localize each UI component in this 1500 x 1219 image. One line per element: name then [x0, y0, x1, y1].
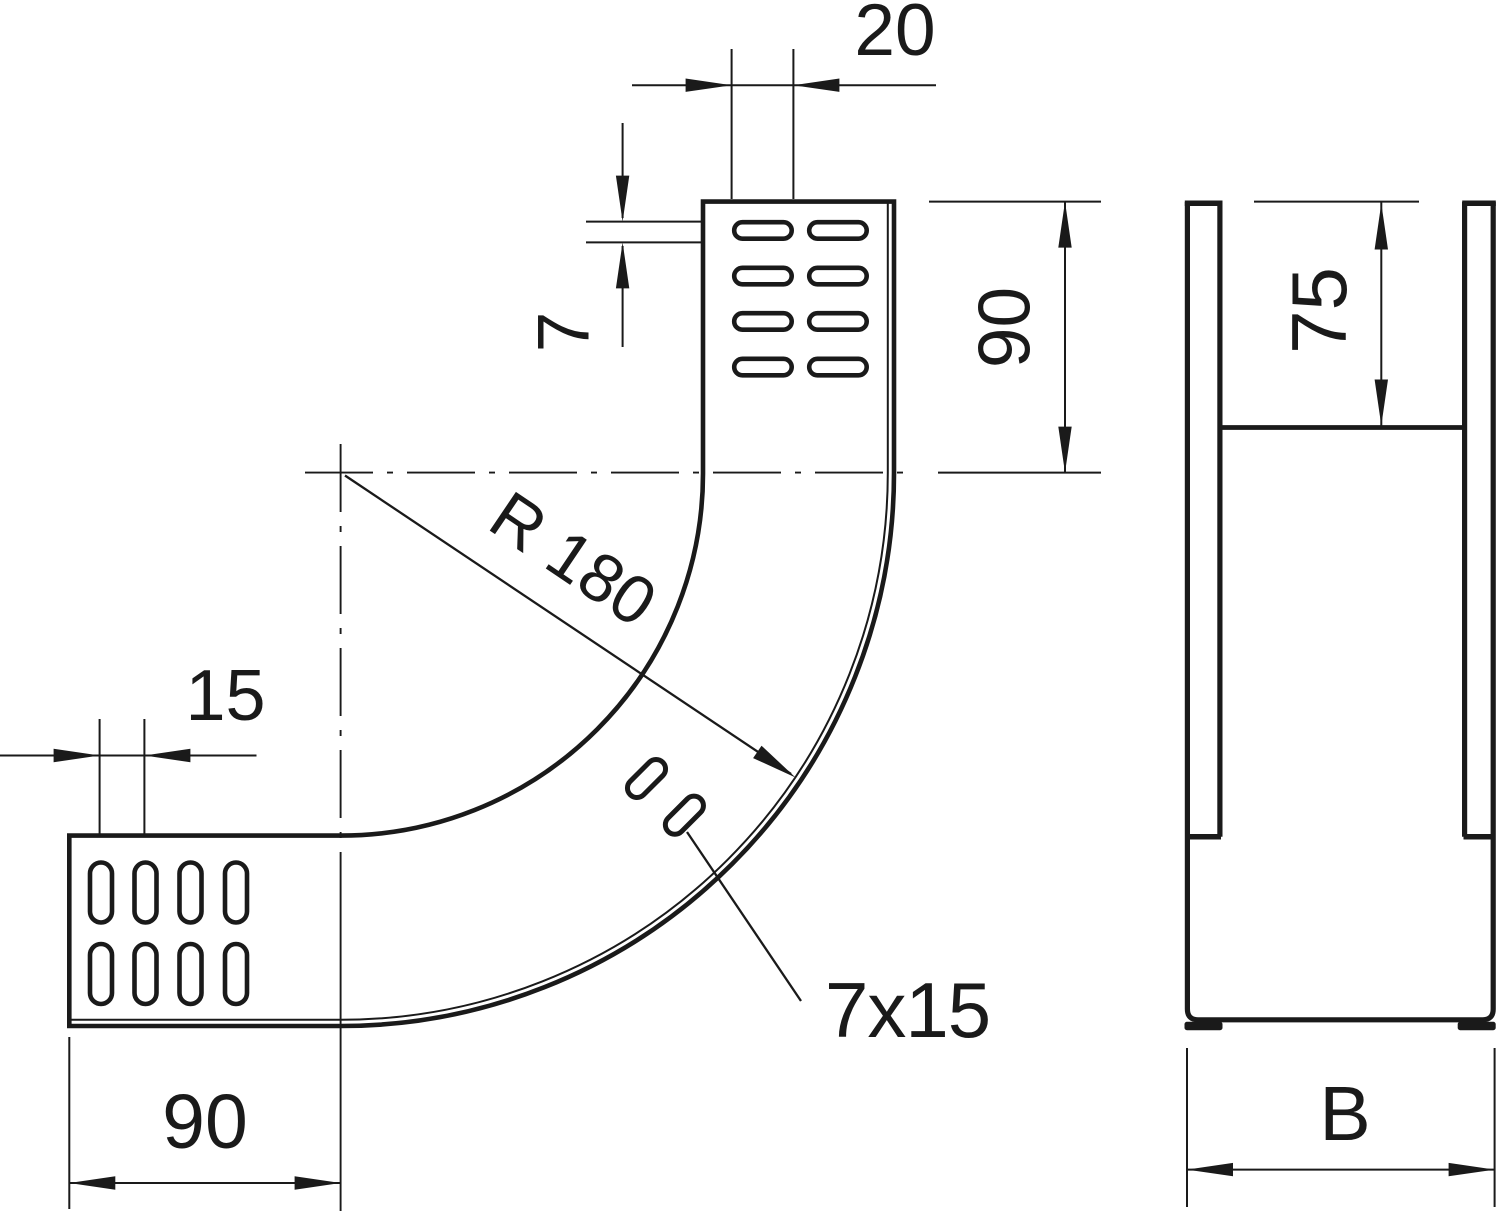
svg-text:90: 90 [964, 287, 1045, 368]
svg-text:90: 90 [162, 1079, 248, 1165]
svg-text:7: 7 [523, 312, 604, 353]
svg-text:15: 15 [185, 656, 265, 736]
svg-text:7x15: 7x15 [825, 966, 990, 1054]
svg-text:75: 75 [1275, 267, 1363, 354]
svg-text:B: B [1319, 1071, 1370, 1157]
svg-text:20: 20 [854, 0, 935, 71]
